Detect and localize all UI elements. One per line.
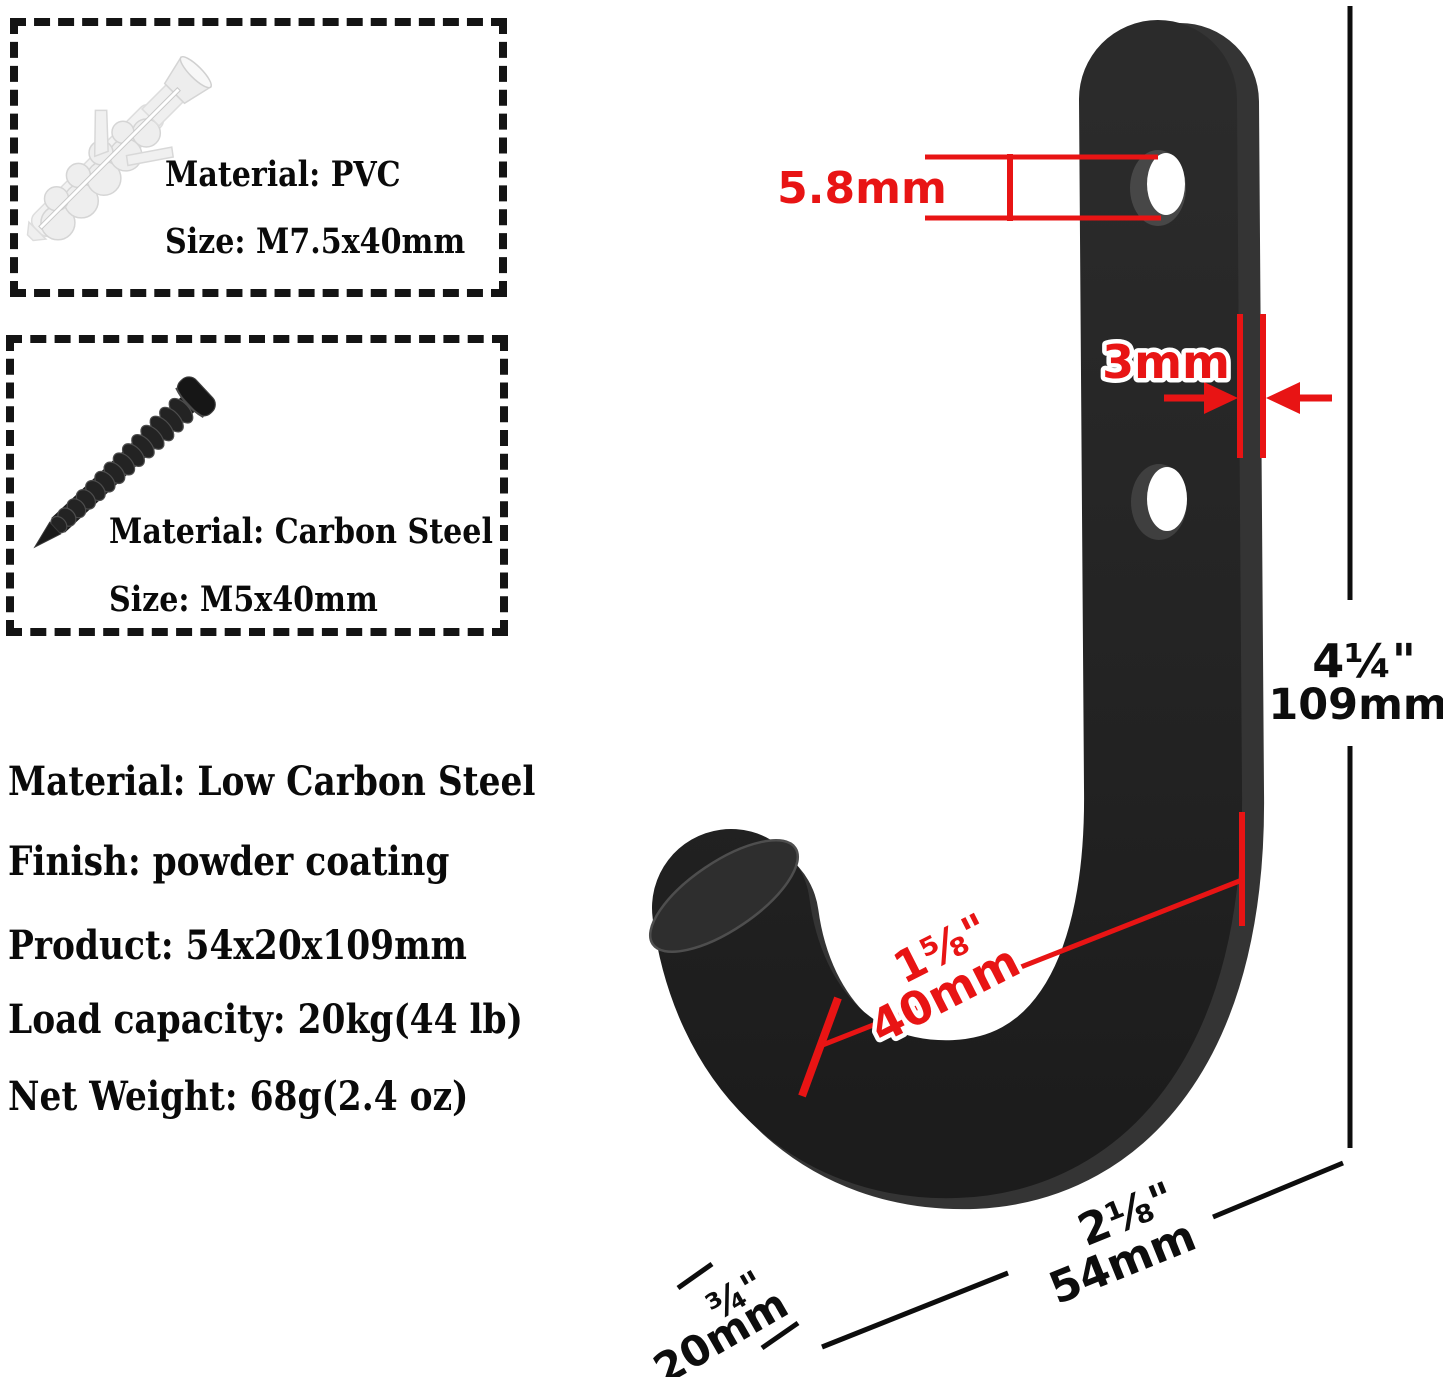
product-spec-image: Material: PVC Size: M7.5x40mm xyxy=(0,0,1443,1377)
hook-diagram: 5.8mm 3mm 4¼" 109mm 1⅝" 40mm xyxy=(0,0,1443,1377)
thickness-label: 3mm xyxy=(1102,335,1230,389)
screw-hole-top xyxy=(1130,150,1186,226)
hole-diameter-label: 5.8mm xyxy=(777,163,947,214)
height-mm-label: 109mm xyxy=(1268,680,1443,730)
screw-hole-bottom xyxy=(1131,464,1187,540)
